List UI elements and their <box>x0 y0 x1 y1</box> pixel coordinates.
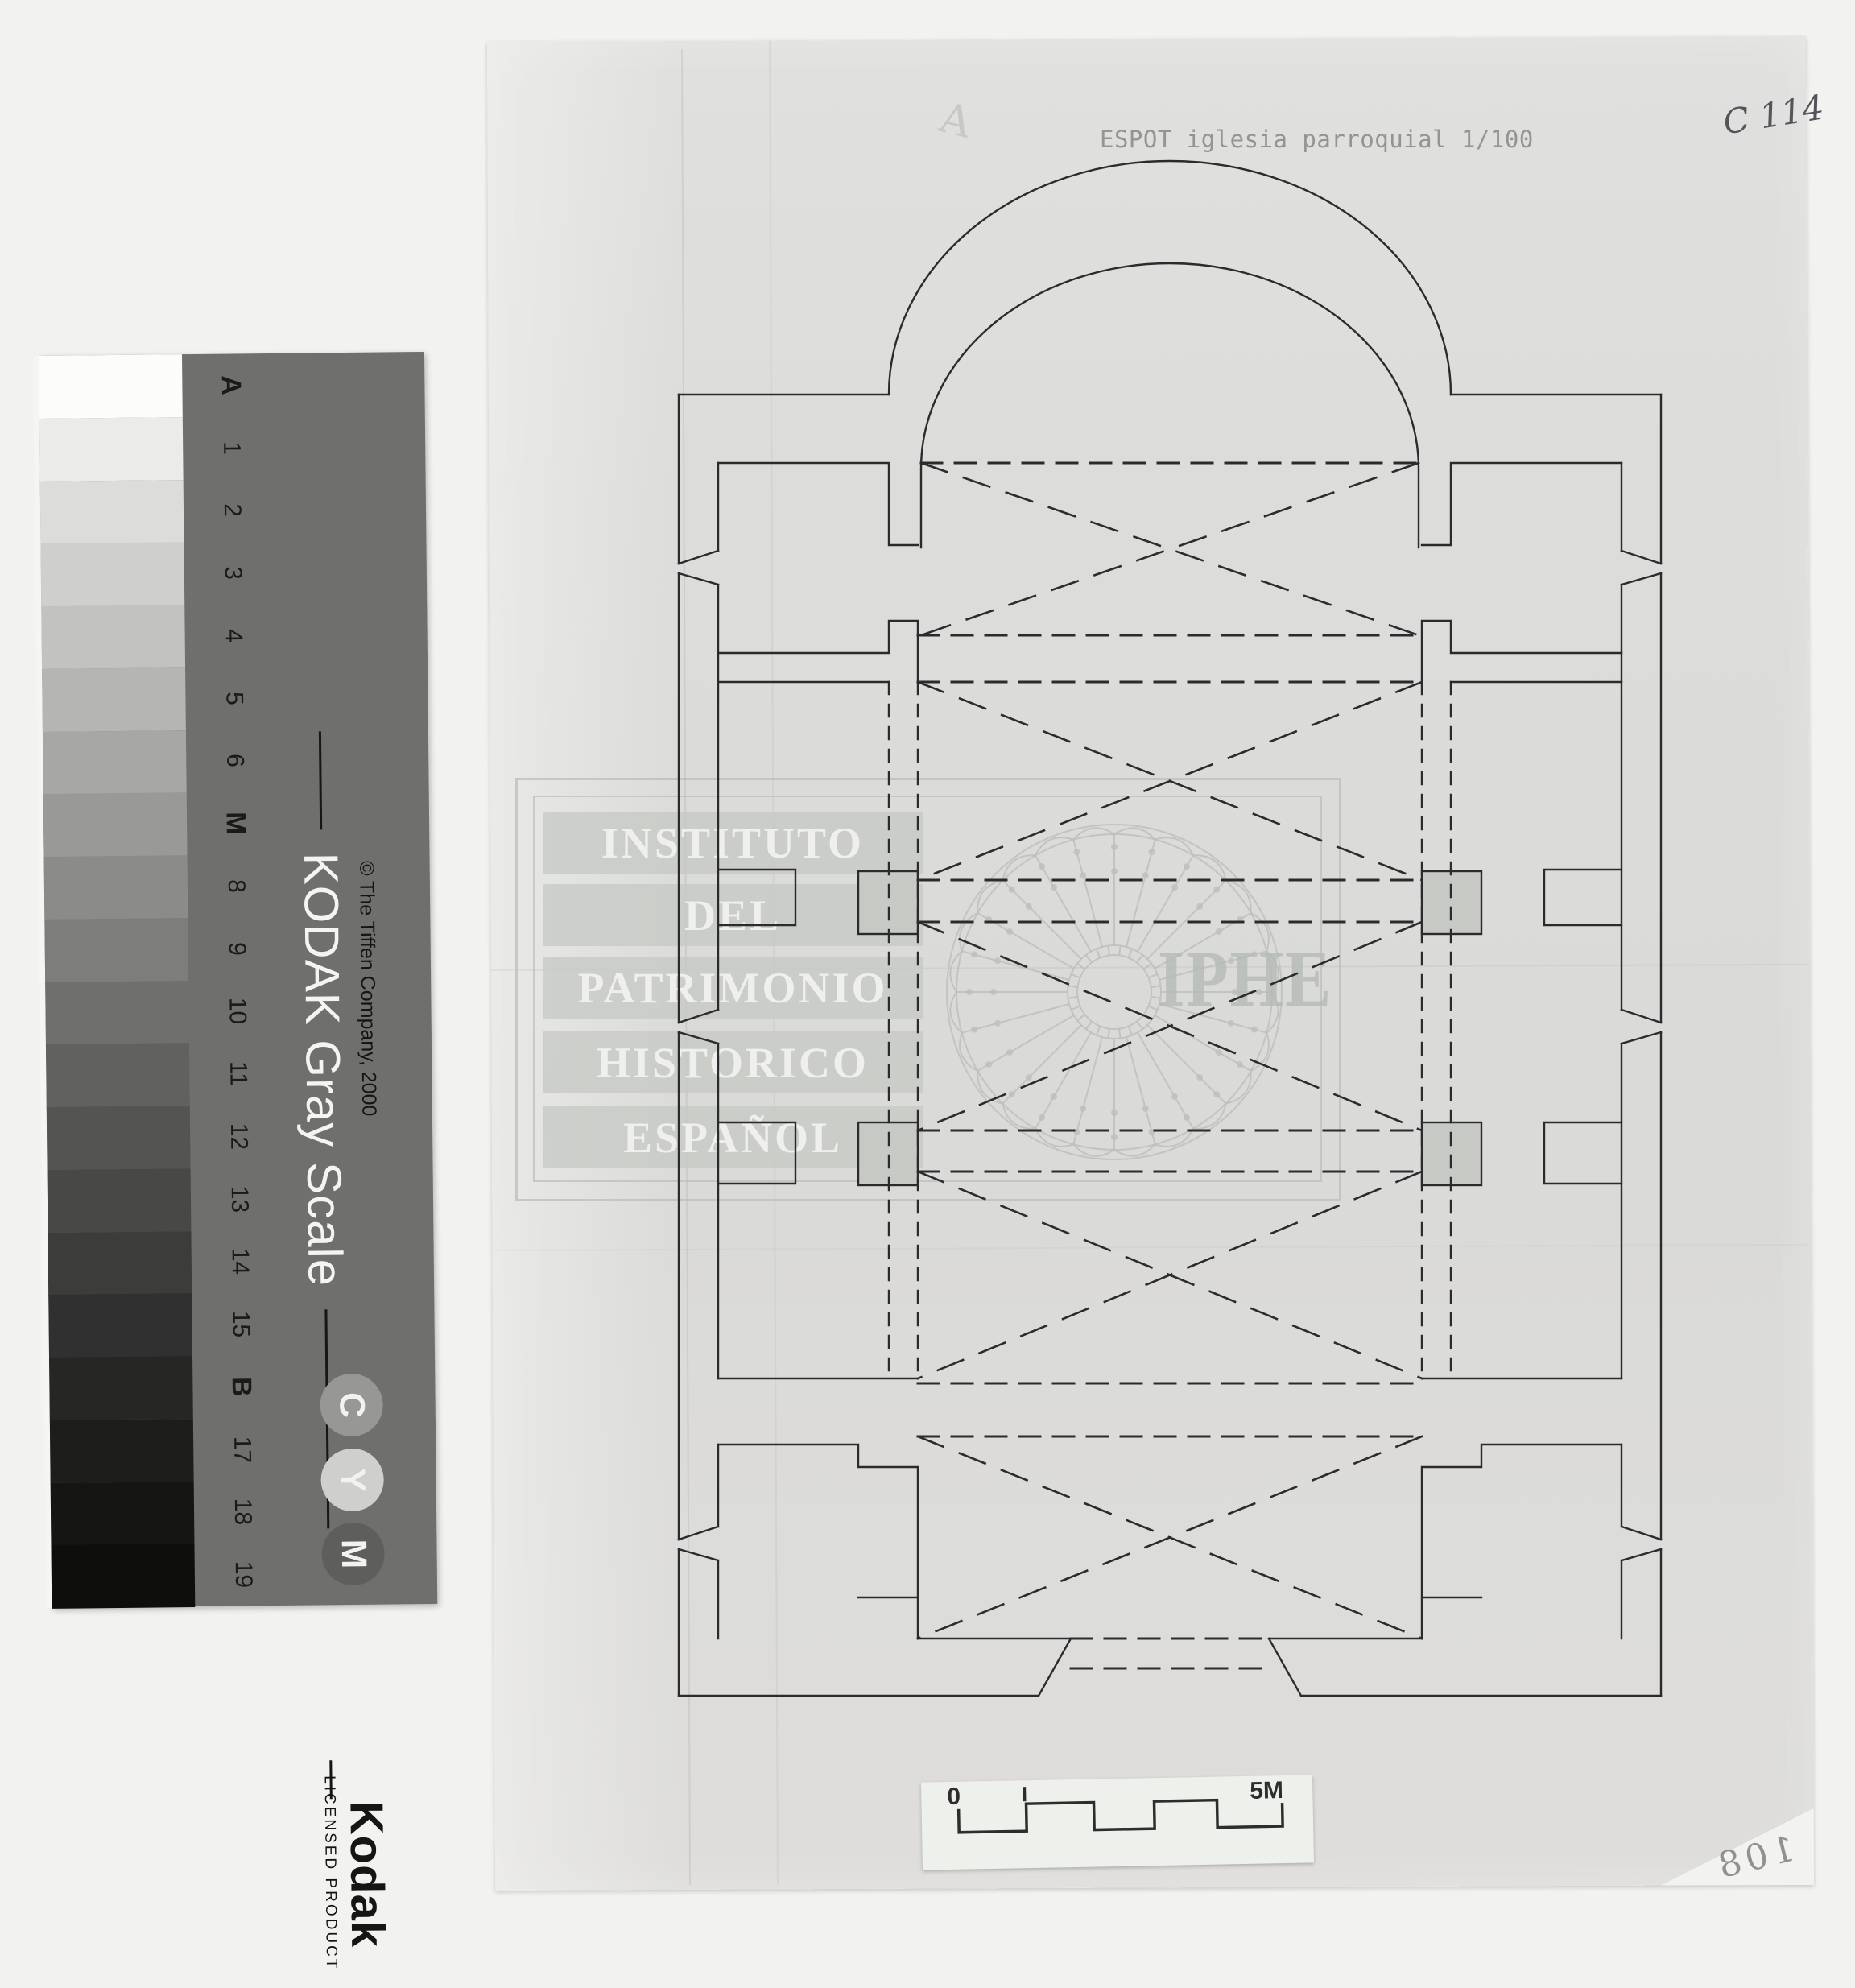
typed-title: ESPOT iglesia parroquial 1/100 <box>1100 126 1534 153</box>
patch-label: 19 <box>229 1561 257 1589</box>
bottom-wall-and-entrance <box>679 1639 1661 1696</box>
magenta-patch-icon: M <box>321 1523 385 1586</box>
patch-label: 2 <box>218 503 246 517</box>
vault-diagonal-crosses <box>918 463 1422 1639</box>
archival-scan-page: { "scan": { "title": "ESPOT iglesia parr… <box>0 0 1855 1988</box>
patch-label: 14 <box>226 1248 254 1275</box>
patch-label: 1 <box>217 441 245 455</box>
patch-label: 17 <box>228 1436 255 1463</box>
kodak-gray-scale-title: KODAK Gray Scale <box>293 852 353 1287</box>
patch-label: 18 <box>229 1498 256 1526</box>
apse-outer-arch <box>889 161 1451 395</box>
patch-label: 9 <box>223 942 250 956</box>
pier-square <box>1422 1122 1481 1185</box>
pier-square <box>858 871 918 934</box>
magenta-letter: M <box>333 1539 373 1568</box>
patch-label: 12 <box>225 1122 252 1150</box>
vault-dashed-horizontals <box>918 463 1422 1668</box>
top-right-room <box>1422 463 1622 682</box>
patch-label: 10 <box>223 998 250 1025</box>
bottom-right-room <box>1422 1445 1622 1639</box>
scale-bar-slip: 0 5M <box>921 1775 1314 1870</box>
patch-label: 6 <box>221 754 248 767</box>
window-splays <box>679 551 1661 1560</box>
pier-square <box>1422 871 1481 934</box>
cyan-letter: C <box>332 1392 372 1418</box>
top-left-room <box>718 463 918 682</box>
scale-bar-wave <box>959 1799 1283 1833</box>
bottom-left-room <box>718 1445 918 1639</box>
licensed-product-text: LICENSED PRODUCT <box>320 1775 340 1970</box>
patch-label: 11 <box>224 1061 251 1087</box>
patch-label: 15 <box>226 1311 254 1338</box>
yellow-patch-icon: Y <box>320 1449 384 1512</box>
patch-label: 13 <box>225 1185 253 1213</box>
pier-square <box>858 1122 918 1185</box>
patch-label: A <box>215 375 246 395</box>
patch-label: 3 <box>219 566 246 580</box>
patch-label: 8 <box>222 879 250 893</box>
yellow-letter: Y <box>332 1468 372 1492</box>
cyan-patch-icon: C <box>320 1374 383 1437</box>
apse-inner-arch <box>921 263 1419 548</box>
patch-label: M <box>219 812 250 835</box>
chapel-separators <box>718 870 1622 1378</box>
kodak-gray-scale-strip: A123456M89101112131415B171819 KODAK Gray… <box>39 352 437 1608</box>
patch-label: 5 <box>220 692 247 705</box>
kodak-logo: Kodak <box>339 1800 395 1948</box>
patch-label: B <box>225 1377 257 1397</box>
patch-label: 4 <box>220 629 247 643</box>
scale-bar-graphic <box>921 1775 1314 1870</box>
tiffen-copyright: © The Tiffen Company, 2000 <box>354 861 380 1117</box>
